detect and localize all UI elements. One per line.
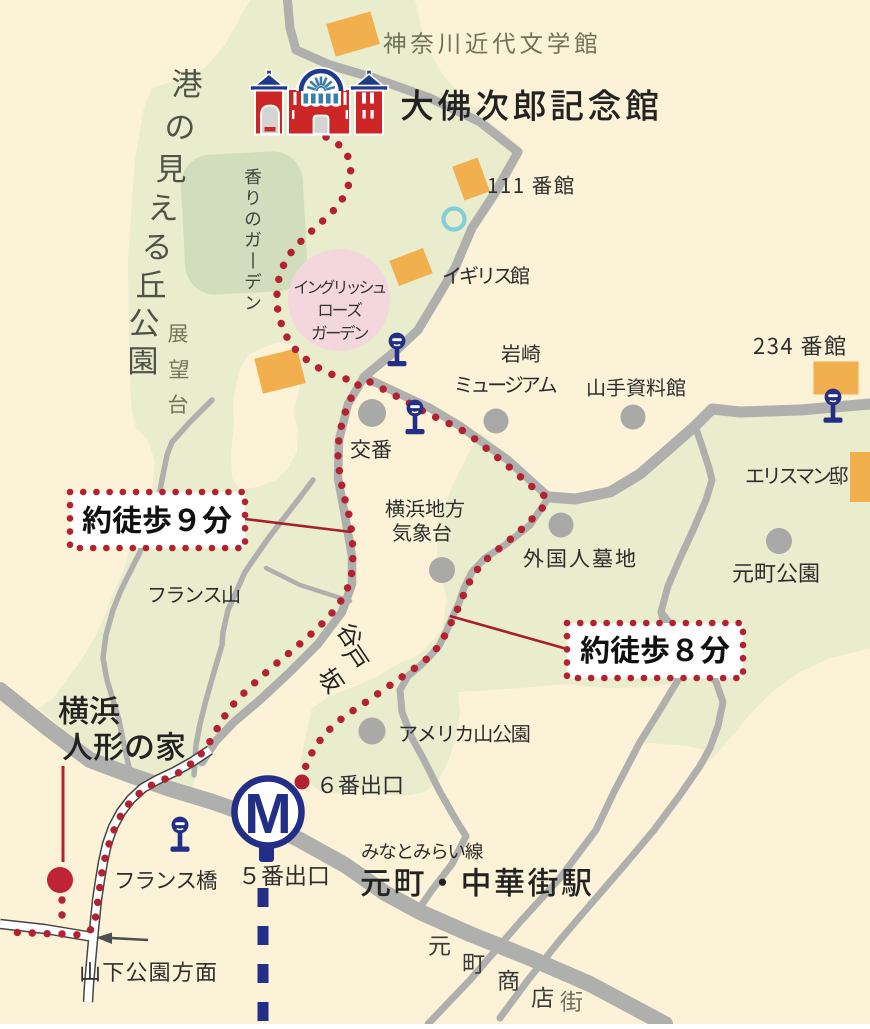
svg-text:M: M: [244, 782, 291, 846]
